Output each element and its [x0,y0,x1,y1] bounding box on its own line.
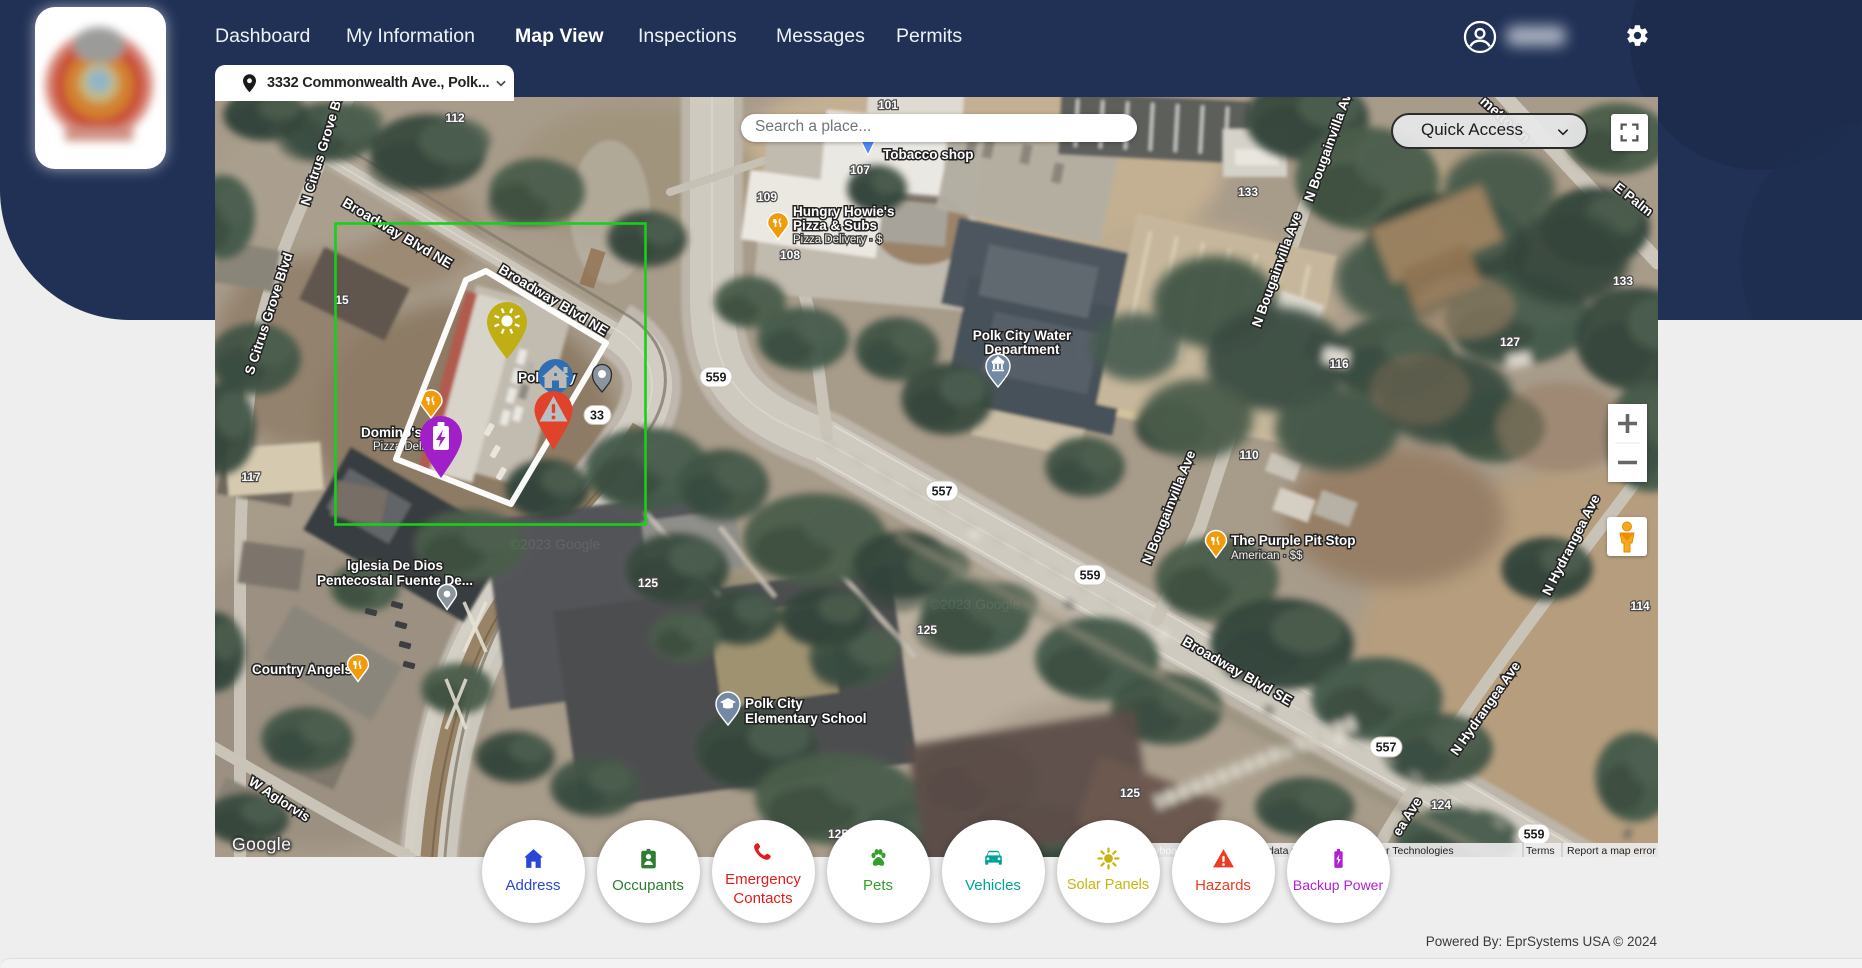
svg-text:15: 15 [335,293,349,307]
svg-text:Terms: Terms [1526,845,1555,857]
svg-text:E Palm: E Palm [1611,180,1656,220]
svg-text:S Citrus Grove Blvd: S Citrus Grove Blvd [242,251,296,377]
svg-text:Broadway Blvd SE: Broadway Blvd SE [1180,633,1295,709]
svg-text:Iglesia De Dios: Iglesia De Dios [347,558,443,573]
svg-text:N Hydrangea Ave: N Hydrangea Ave [1447,658,1523,758]
svg-text:108: 108 [780,248,800,262]
svg-text:114: 114 [1630,599,1650,613]
svg-text:101: 101 [878,98,898,112]
svg-text:125: 125 [1120,786,1140,800]
svg-text:125: 125 [638,576,658,590]
svg-text:N Hydrangea Ave: N Hydrangea Ave [1539,492,1603,598]
svg-text:124: 124 [1431,798,1451,812]
svg-text:Hungry Howie's: Hungry Howie's [793,204,894,219]
svg-text:557: 557 [932,485,953,499]
svg-text:Country Angels: Country Angels [252,662,352,677]
svg-text:117: 117 [241,470,261,484]
svg-text:Polk City: Polk City [745,696,803,711]
svg-text:Tobacco shop: Tobacco shop [883,147,974,162]
svg-text:Elementary School: Elementary School [745,711,867,726]
svg-text:133: 133 [1613,274,1633,288]
svg-text:125: 125 [917,623,937,637]
svg-text:Pizza & Subs: Pizza & Subs [793,218,877,233]
svg-text:112: 112 [445,111,465,125]
svg-text:N Bougainvilla Ave: N Bougainvilla Ave [1139,448,1199,567]
svg-text:Google: Google [232,834,291,854]
svg-text:110: 110 [1239,448,1259,462]
svg-text:127: 127 [1500,335,1520,349]
svg-text:557: 557 [1376,741,1397,755]
svg-text:American · $$: American · $$ [1231,550,1303,562]
svg-text:©2023 Google: ©2023 Google [930,596,1021,612]
svg-text:559: 559 [706,371,727,385]
svg-text:ea Ave: ea Ave [1390,794,1426,838]
svg-text:559: 559 [1080,569,1101,583]
svg-text:Broadway Blvd NE: Broadway Blvd NE [340,194,455,271]
svg-text:The Purple Pit Stop: The Purple Pit Stop [1231,533,1356,548]
svg-text:W Aglorvis: W Aglorvis [246,774,313,825]
svg-text:107: 107 [850,163,870,177]
svg-text:Polk City Water: Polk City Water [973,328,1072,343]
svg-text:133: 133 [1238,185,1258,199]
svg-text:©2023 Google: ©2023 Google [510,536,601,552]
svg-text:N Bougainvilla Av: N Bougainvilla Av [1301,97,1354,203]
svg-text:Report a map error: Report a map error [1567,845,1656,857]
svg-text:Pizza Delivery · $: Pizza Delivery · $ [793,234,883,246]
svg-text:109: 109 [757,190,777,204]
svg-text:33: 33 [590,409,604,423]
svg-text:N Citrus Grove Blvd: N Citrus Grove Blvd [298,97,350,207]
svg-text:116: 116 [1329,357,1349,371]
svg-text:559: 559 [1524,828,1545,842]
svg-text:N Bougainvilla Ave: N Bougainvilla Ave [1249,209,1305,329]
